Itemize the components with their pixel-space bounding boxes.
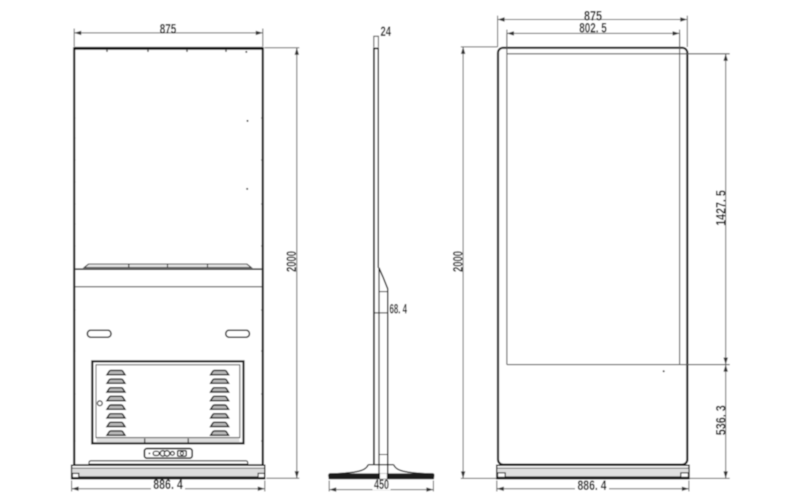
svg-text:68. 4: 68. 4 [389,300,407,316]
svg-text:886. 4: 886. 4 [578,477,607,493]
svg-text:1427. 5: 1427. 5 [712,190,728,226]
svg-text:24: 24 [381,23,392,39]
svg-text:875: 875 [160,21,177,37]
svg-text:886. 4: 886. 4 [153,476,183,492]
svg-text:450: 450 [374,476,389,492]
svg-text:536. 3: 536. 3 [712,405,728,435]
svg-text:2000: 2000 [283,251,299,272]
svg-text:2000: 2000 [449,251,465,272]
svg-text:802. 5: 802. 5 [579,20,607,36]
